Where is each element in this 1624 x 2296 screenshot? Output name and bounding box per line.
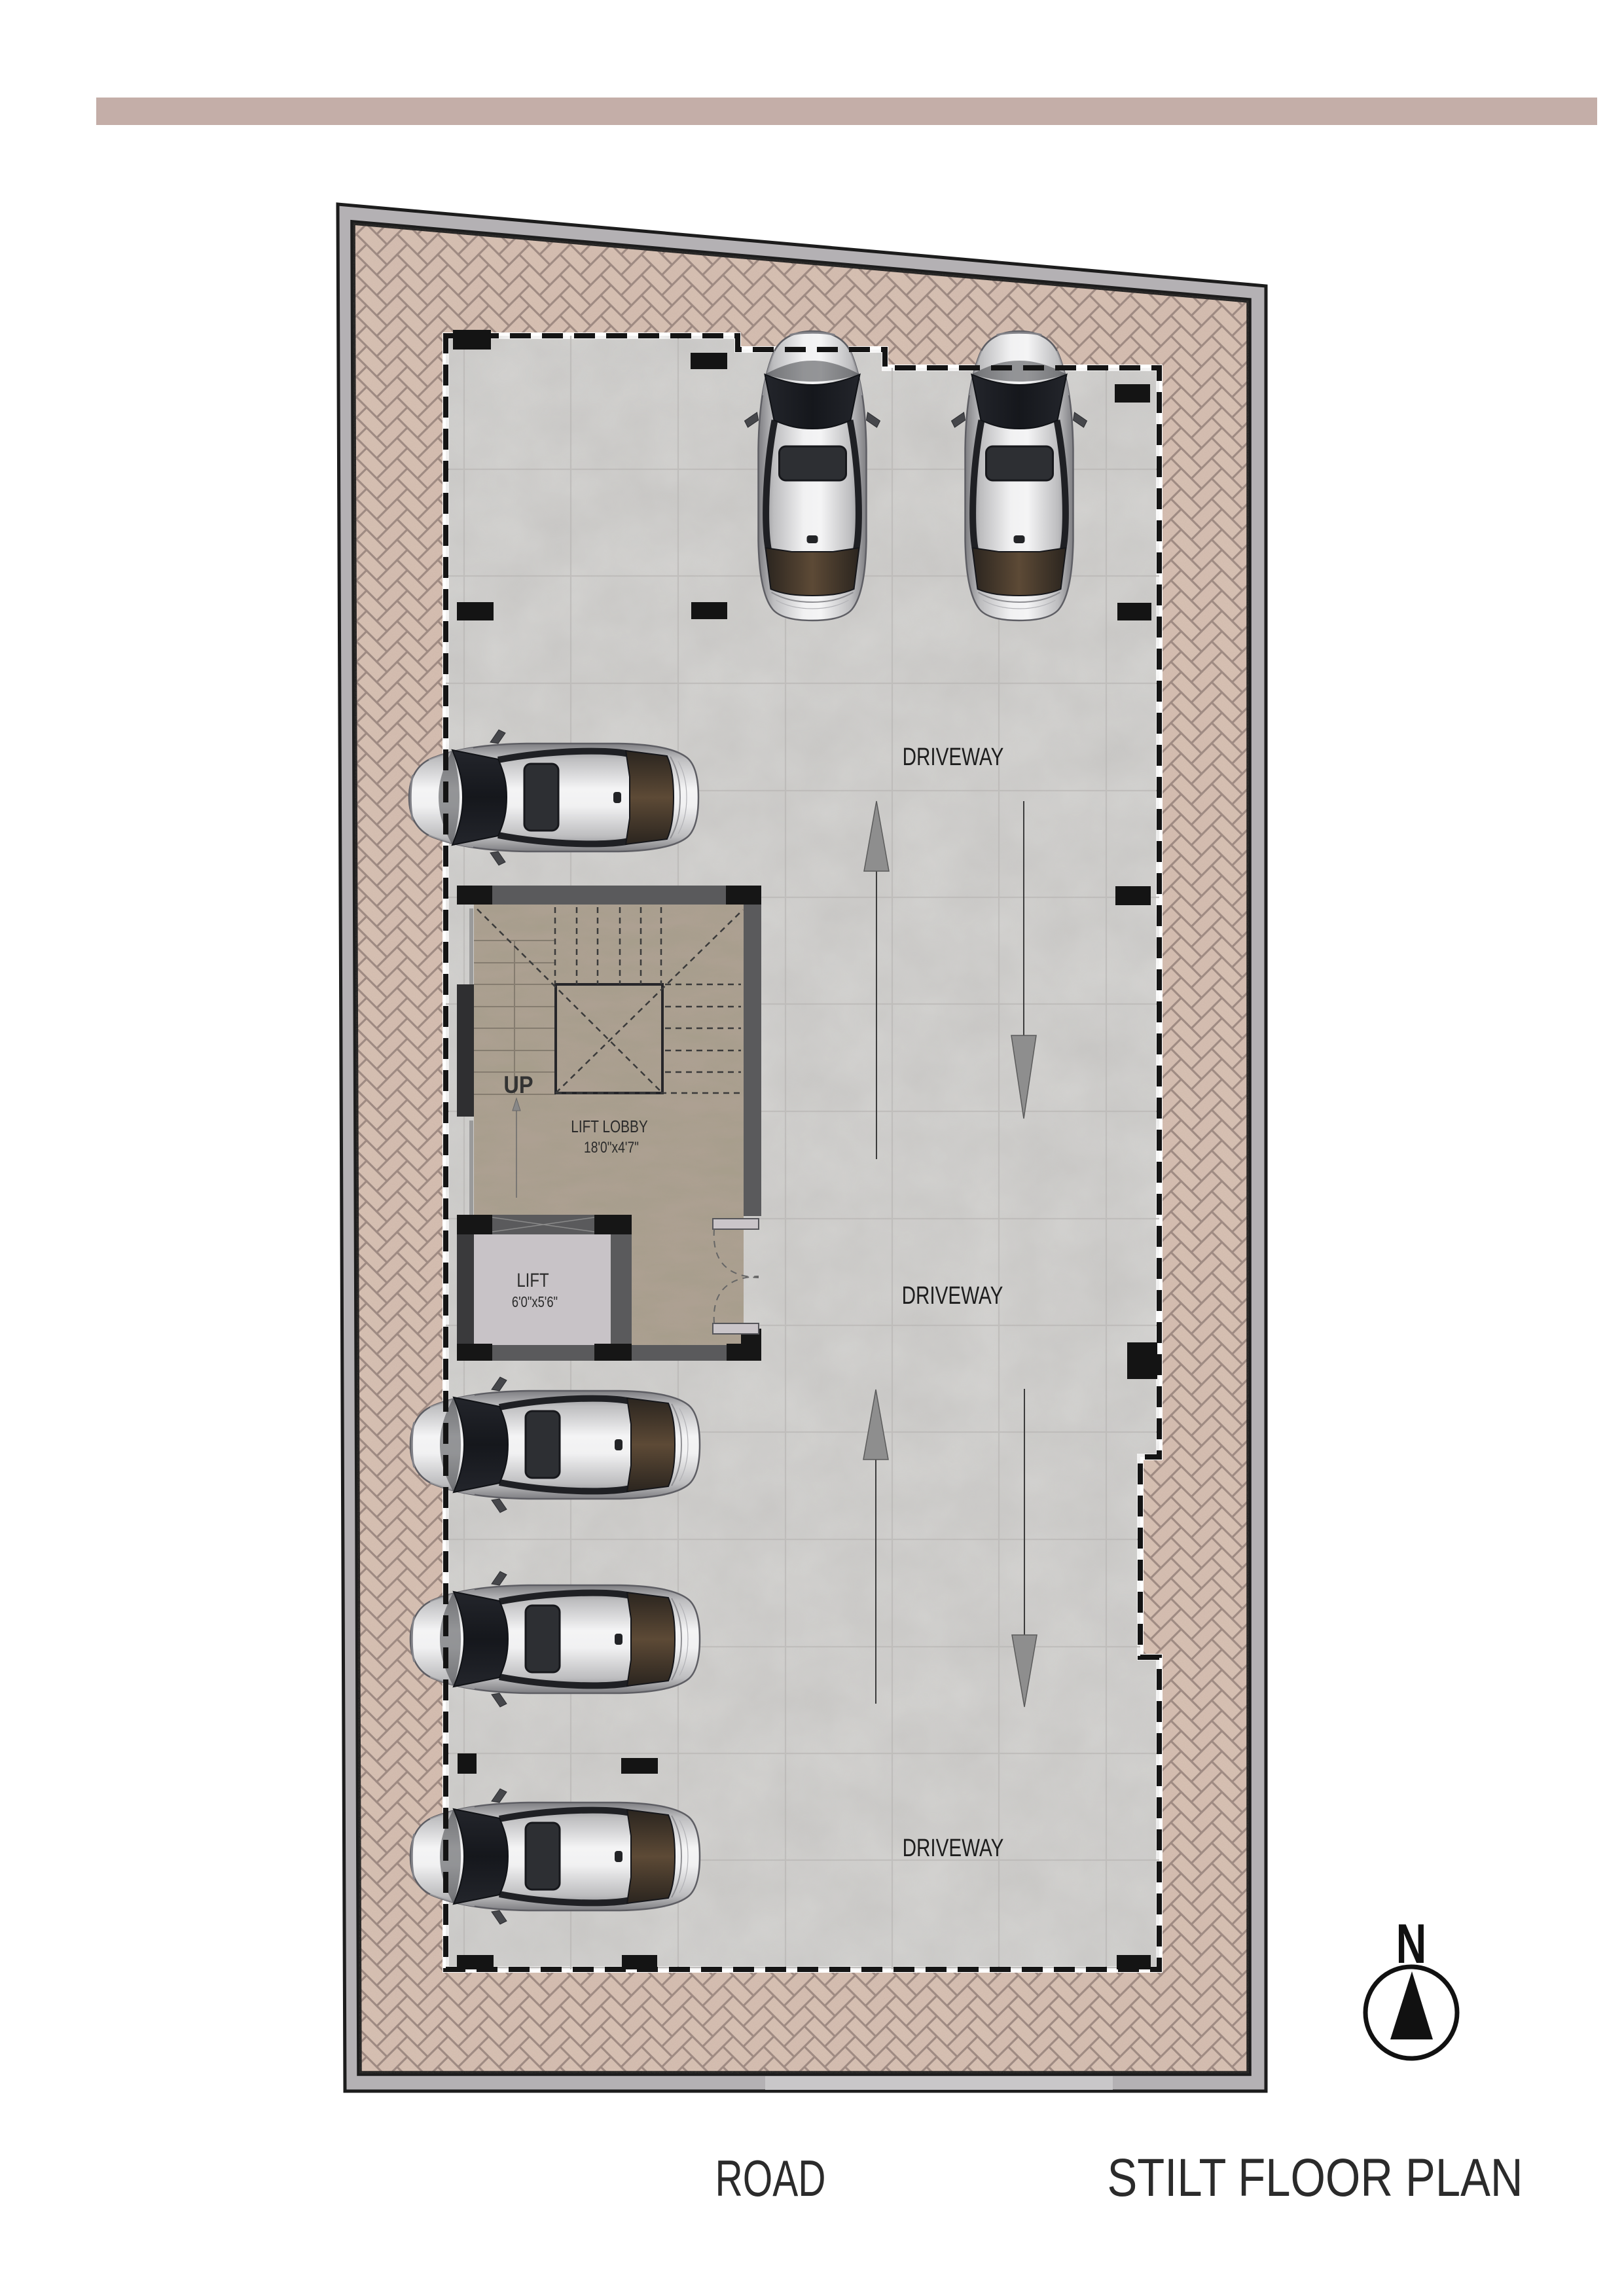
svg-text:DRIVEWAY: DRIVEWAY xyxy=(902,1282,1003,1310)
svg-text:18'0"x4'7": 18'0"x4'7" xyxy=(584,1138,639,1157)
svg-text:6'0"x5'6": 6'0"x5'6" xyxy=(512,1294,558,1310)
svg-text:LIFT: LIFT xyxy=(516,1268,549,1291)
svg-text:LIFT LOBBY: LIFT LOBBY xyxy=(571,1117,648,1136)
svg-text:DRIVEWAY: DRIVEWAY xyxy=(903,744,1004,771)
svg-text:UP: UP xyxy=(503,1071,533,1098)
svg-text:ROAD: ROAD xyxy=(715,2150,825,2207)
svg-text:STILT FLOOR PLAN: STILT FLOOR PLAN xyxy=(1107,2148,1523,2208)
svg-text:DRIVEWAY: DRIVEWAY xyxy=(903,1835,1004,1862)
